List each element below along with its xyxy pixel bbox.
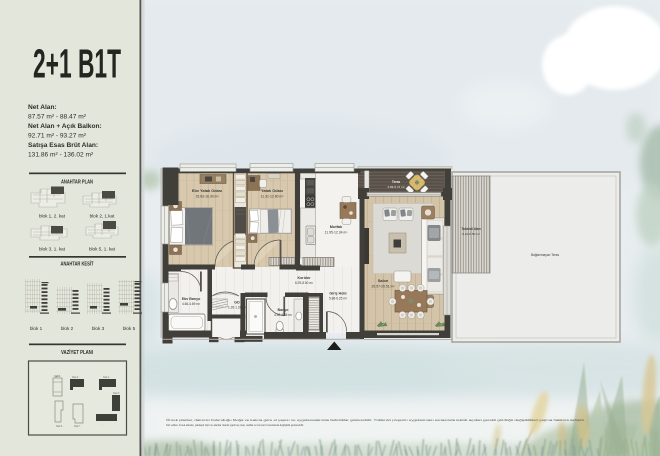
- svg-text:blok 1: blok 1: [103, 376, 110, 379]
- svg-text:Örnek planlar, dairenin bulund: Örnek planlar, dairenin bulunduğu bloğa …: [166, 418, 585, 422]
- svg-text:Giriş Holü: Giriş Holü: [329, 292, 346, 296]
- svg-text:VAZİYET PLANI: VAZİYET PLANI: [61, 349, 93, 356]
- svg-text:blok 3: blok 3: [92, 326, 105, 331]
- svg-text:blok 5: blok 5: [123, 326, 136, 331]
- svg-text:Bağlanmayan Teras: Bağlanmayan Teras: [531, 253, 560, 257]
- svg-text:Tahsisli Alan: Tahsisli Alan: [461, 227, 480, 231]
- svg-text:blok 4: blok 4: [54, 375, 61, 378]
- svg-text:Koridor: Koridor: [298, 276, 312, 280]
- svg-text:11.31-12.80 m²: 11.31-12.80 m²: [261, 195, 285, 199]
- svg-text:blok 3: blok 3: [113, 392, 120, 395]
- svg-text:blok 3, 1. kat: blok 3, 1. kat: [39, 247, 66, 252]
- svg-text:131.86 m² - 136.02 m²: 131.86 m² - 136.02 m²: [28, 152, 94, 159]
- svg-text:blok 7: blok 7: [74, 425, 81, 428]
- svg-text:Net Alan + Açık Balkon:: Net Alan + Açık Balkon:: [28, 123, 102, 130]
- svg-text:4.66-4.69 m²: 4.66-4.69 m²: [182, 302, 200, 306]
- svg-text:92.71 m² - 93.27 m²: 92.71 m² - 93.27 m²: [28, 133, 87, 140]
- svg-text:8.29-8.50 m²: 8.29-8.50 m²: [295, 281, 313, 285]
- svg-text:Salon: Salon: [378, 278, 389, 283]
- svg-text:29.57-29.51 m²: 29.57-29.51 m²: [372, 285, 396, 289]
- svg-text:Teras: Teras: [392, 180, 400, 184]
- svg-text:blok 2, 1.kat: blok 2, 1.kat: [90, 214, 115, 219]
- svg-text:Yatak Odası: Yatak Odası: [261, 188, 283, 193]
- svg-text:Mutfak: Mutfak: [330, 224, 343, 229]
- svg-text:blok 5, 1. kat: blok 5, 1. kat: [89, 247, 116, 252]
- svg-text:2+1 B1T: 2+1 B1T: [33, 41, 121, 87]
- svg-text:87.57 m² - 88.47 m²: 87.57 m² - 88.47 m²: [28, 114, 87, 121]
- svg-text:Ebv Banyo: Ebv Banyo: [182, 297, 201, 301]
- svg-text:15.83-16.30 m²: 15.83-16.30 m²: [196, 195, 220, 199]
- svg-text:GD: GD: [234, 301, 240, 305]
- svg-text:blok 5: blok 5: [100, 424, 107, 427]
- svg-text:Banyo: Banyo: [278, 308, 290, 312]
- svg-text:5.88-6.25 m²: 5.88-6.25 m²: [329, 297, 347, 301]
- svg-text:Satışa Esas Brüt Alan:: Satışa Esas Brüt Alan:: [28, 142, 98, 149]
- svg-text:8.24-8.50 m²: 8.24-8.50 m²: [462, 232, 480, 236]
- svg-text:Ebv Yatak Odası: Ebv Yatak Odası: [192, 188, 222, 193]
- svg-text:ANAHTAR PLAN: ANAHTAR PLAN: [61, 180, 93, 186]
- svg-text:blok 1, 2. kat: blok 1, 2. kat: [39, 214, 66, 219]
- svg-text:blok 2: blok 2: [72, 376, 79, 379]
- svg-text:blok 2: blok 2: [61, 326, 74, 331]
- svg-text:Net Alan:: Net Alan:: [28, 104, 57, 111]
- svg-text:4.52-4.68 m²: 4.52-4.68 m²: [274, 313, 292, 317]
- svg-text:blok 1: blok 1: [30, 326, 43, 331]
- svg-text:ANAHTAR KESİT: ANAHTAR KESİT: [61, 261, 95, 268]
- svg-text:11.95-12.34 m²: 11.95-12.34 m²: [325, 231, 349, 235]
- svg-text:4.99-5.72 m²: 4.99-5.72 m²: [387, 185, 404, 189]
- svg-text:blok 6: blok 6: [56, 425, 63, 428]
- svg-text:Söz edilen örnek alanlar, yakl: Söz edilen örnek alanlar, yaklaşık ölçü …: [166, 423, 304, 427]
